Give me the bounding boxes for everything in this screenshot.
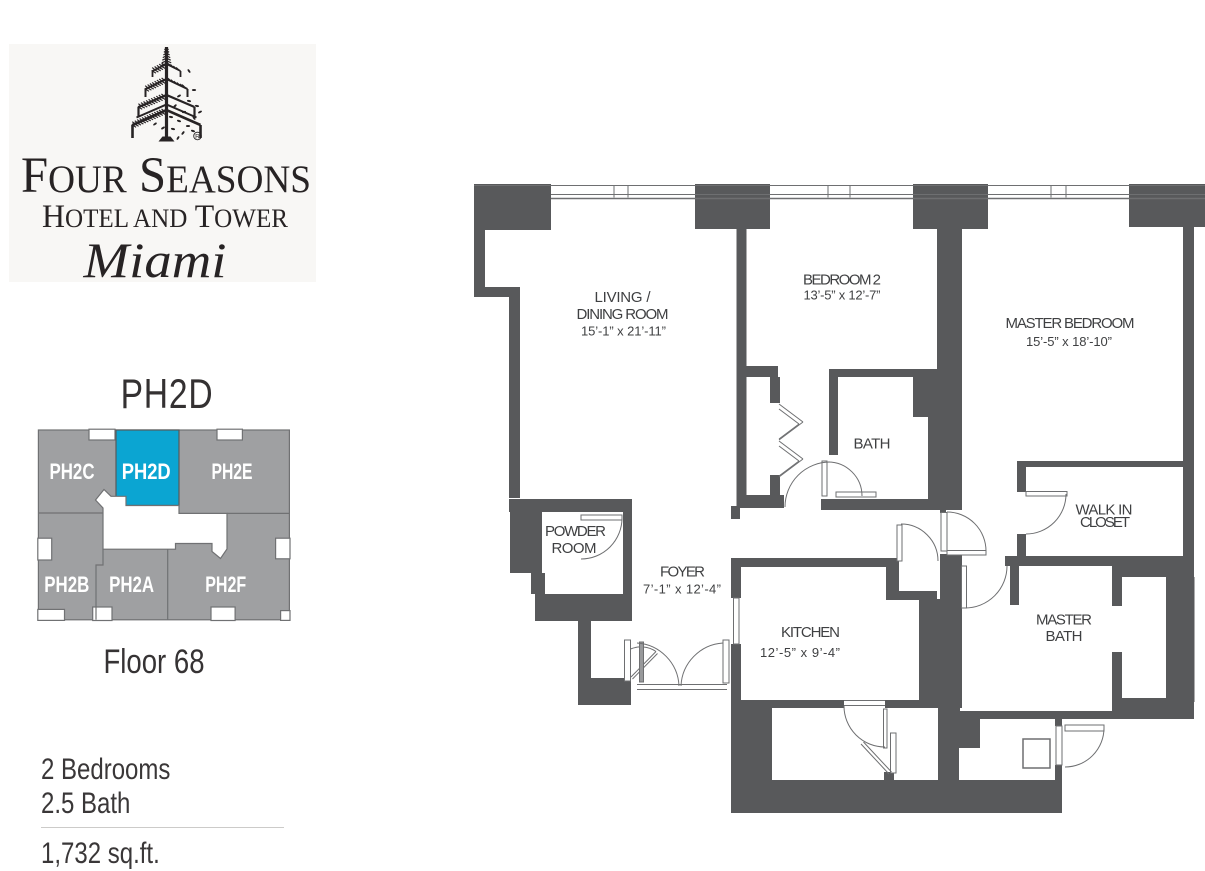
svg-text:15’-5” x 18’-10”: 15’-5” x 18’-10” [1026, 334, 1112, 349]
svg-text:POWDER: POWDER [545, 523, 606, 540]
svg-text:PH2C: PH2C [50, 459, 95, 484]
svg-text:MASTER: MASTER [1036, 612, 1092, 629]
svg-text:LIVING /: LIVING / [595, 289, 652, 306]
svg-text:PH2D: PH2D [122, 459, 171, 484]
svg-text:15’-1” x 21’-11”: 15’-1” x 21’-11” [581, 324, 666, 339]
svg-text:KITCHEN: KITCHEN [781, 624, 840, 641]
svg-text:ROOM: ROOM [552, 540, 597, 557]
svg-text:PH2F: PH2F [205, 572, 246, 597]
svg-text:Miami: Miami [82, 232, 226, 288]
svg-text:FOUR SEASONS: FOUR SEASONS [21, 148, 311, 204]
svg-text:BATH: BATH [854, 436, 891, 453]
svg-text:13’-5” x 12’-7”: 13’-5” x 12’-7” [804, 288, 881, 303]
svg-text:MASTER BEDROOM: MASTER BEDROOM [1006, 315, 1135, 332]
svg-text:12’-5” x 9’-4”: 12’-5” x 9’-4” [760, 645, 840, 660]
svg-text:FOYER: FOYER [660, 564, 705, 581]
svg-text:7’-1” x 12’-4”: 7’-1” x 12’-4” [643, 582, 721, 597]
svg-text:PH2E: PH2E [212, 459, 253, 484]
svg-text:CLOSET: CLOSET [1080, 514, 1130, 531]
svg-text:R: R [195, 134, 200, 141]
svg-text:PH2A: PH2A [109, 572, 154, 597]
svg-text:HOTEL AND TOWER: HOTEL AND TOWER [42, 199, 289, 235]
svg-text:PH2B: PH2B [44, 572, 89, 597]
svg-text:BEDROOM 2: BEDROOM 2 [803, 272, 881, 289]
svg-text:DINING ROOM: DINING ROOM [577, 306, 669, 323]
svg-text:BATH: BATH [1046, 628, 1083, 645]
